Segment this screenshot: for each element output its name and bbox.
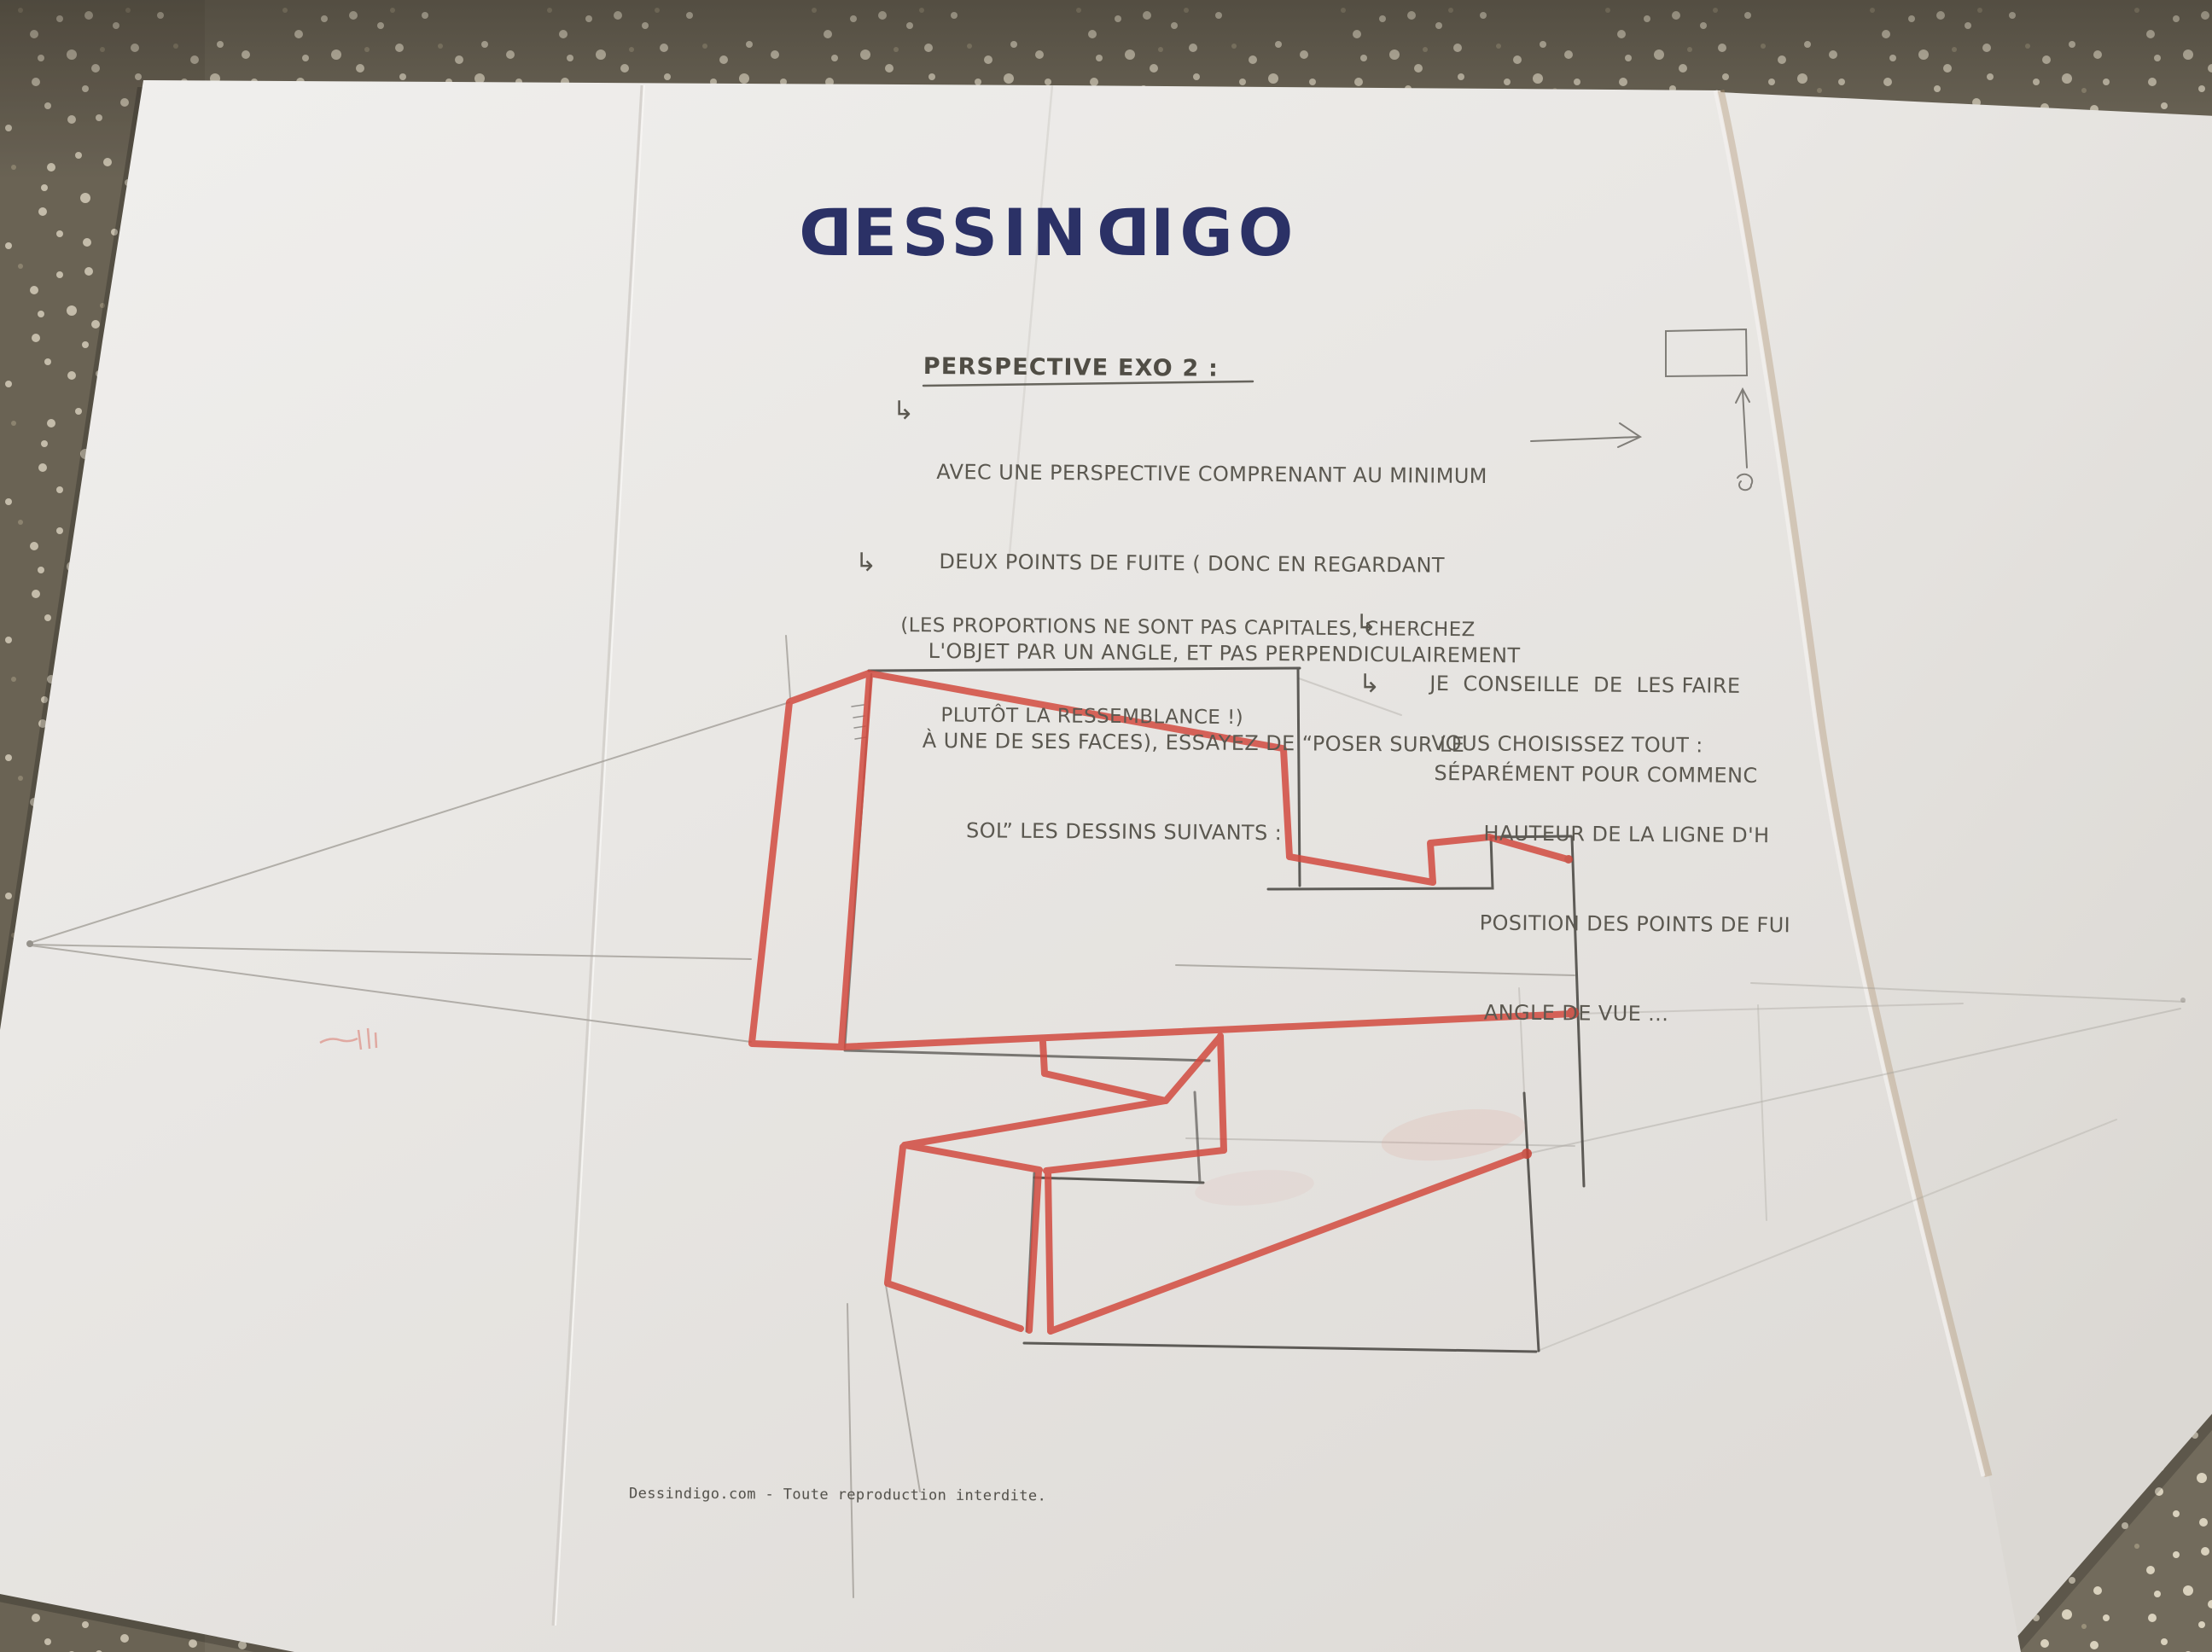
right-vanishing-point — [2180, 998, 2186, 1003]
intro-line: AVEC UNE PERSPECTIVE COMPRENANT AU MINIM… — [936, 457, 1522, 492]
photo-of-worksheet: DESSINDIGO PERSPECTIVE EXO 2 : ↳ AVEC UN… — [0, 0, 2212, 1652]
elbow-arrow-note: ↳ — [855, 548, 876, 578]
elbow-arrow-intro: ↳ — [893, 396, 914, 426]
advice2-line: POSITION DES POINTS DE FUI — [1480, 908, 1791, 940]
advice2-paragraph: VOUS CHOISISSEZ TOUT : HAUTEUR DE LA LIG… — [1429, 669, 1792, 1090]
advice2-line: HAUTEUR DE LA LIGNE D'H — [1483, 818, 1791, 851]
logo-segment: ESSIN — [853, 195, 1091, 270]
logo-segment2: IGO — [1150, 195, 1298, 270]
elbow-arrow-advice1: ↳ — [1355, 609, 1377, 639]
advice2-line: ANGLE DE VUE ... — [1484, 998, 1790, 1030]
left-vanishing-point — [26, 940, 33, 947]
note-line: (LES PROPORTIONS NE SONT PAS CAPITALES, … — [900, 611, 1476, 645]
note-paragraph: (LES PROPORTIONS NE SONT PAS CAPITALES, … — [899, 551, 1476, 794]
logo-letter-d: D — [794, 195, 853, 270]
advice2-intro: VOUS CHOISISSEZ TOUT : — [1431, 729, 1792, 761]
copyright-footer: Dessindigo.com - Toute reproduction inte… — [629, 1486, 1046, 1505]
dessindigo-logo: DESSINDIGO — [794, 195, 1298, 270]
exercise-heading: PERSPECTIVE EXO 2 : — [923, 353, 1219, 382]
logo-letter-d2: D — [1091, 195, 1150, 270]
note-line: PLUTÔT LA RESSEMBLANCE !) — [940, 701, 1475, 735]
elbow-arrow-advice2: ↳ — [1359, 669, 1380, 699]
